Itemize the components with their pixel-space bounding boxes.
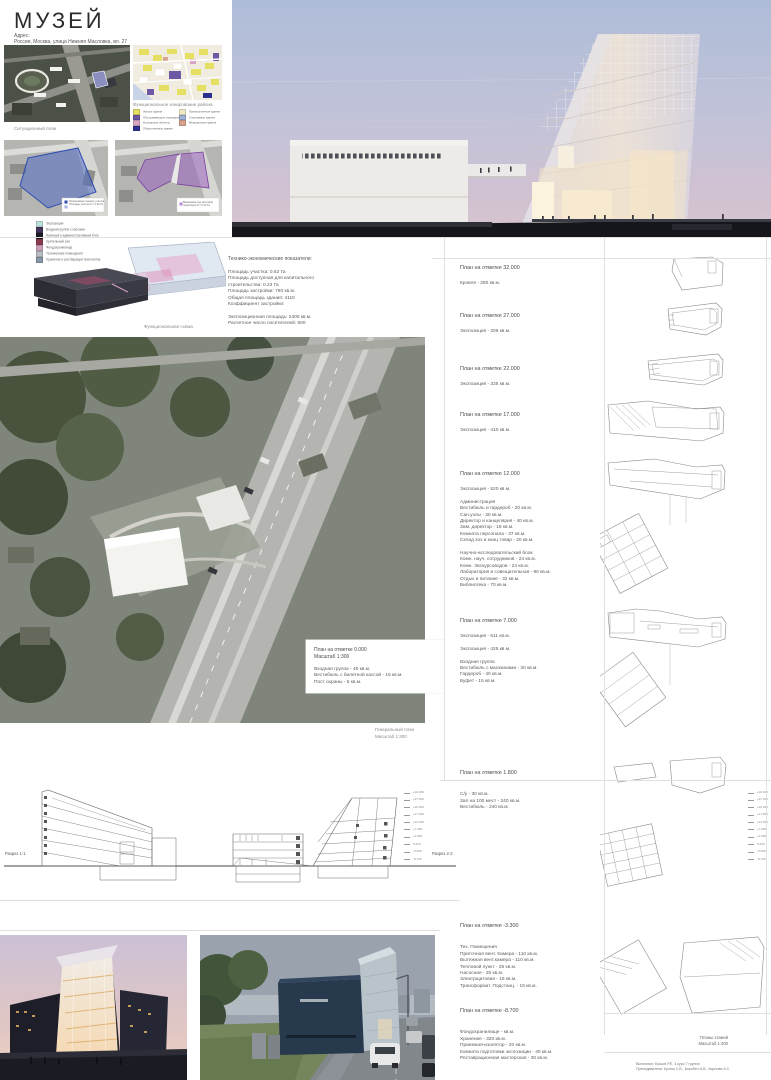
plan-block-line: Реставрационная мастерская - 30 кв.м. [460, 1056, 632, 1062]
floor-plan-drawings [600, 237, 771, 1035]
divider [432, 258, 771, 259]
elevation-mark: +1.800 [748, 834, 768, 841]
elevation-mark: -8.700 [404, 857, 424, 864]
functional-scheme-image [28, 242, 226, 327]
functional-scheme-caption: Функциональная схема [144, 324, 193, 329]
elevation-mark: +17.000 [748, 812, 768, 819]
legend-swatch [36, 227, 43, 233]
divider [604, 237, 605, 1035]
masterplan-caption-1: Генеральный план [375, 727, 414, 732]
elevation-mark: +27.000 [748, 797, 768, 804]
page-title: МУЗЕЙ [14, 8, 105, 34]
indicators-lines: Площадь участка: 0.62 ГаПлощадь доступна… [228, 270, 368, 328]
presentation-board: МУЗЕЙ Адрес: Россия, Москва, улица Нижня… [0, 0, 771, 1080]
plan-0-note-lines: Входная группа - 46 кв.м.Вестибюль с бил… [314, 667, 436, 686]
elevation-mark: -3.300 [748, 849, 768, 856]
elevation-mark: +12.000 [748, 820, 768, 827]
zoning-map-image [133, 45, 222, 105]
zoning-legend-item: Общественные здания [133, 126, 179, 132]
night-render-svg [0, 935, 187, 1080]
sections-drawing [0, 778, 460, 909]
site-map-a-image [4, 140, 108, 221]
plan-0-note: План на отметке 0.000 Масштаб 1:300 Вход… [306, 640, 444, 693]
elevation-mark: +17.000 [404, 812, 424, 819]
plans-caption: Планы этажей Масштаб 1:400 [652, 1035, 728, 1047]
situation-caption: Ситуационный план [14, 126, 56, 131]
zoning-legend-item: Медицинские здания [179, 120, 225, 126]
zoning-caption: Функциональное зонирование района [133, 102, 213, 107]
elevation-mark: +7.000 [748, 827, 768, 834]
site-map-a-legend: Нормативная граница участкаПлощадь участ… [69, 200, 105, 207]
elevation-mark: +12.000 [404, 820, 424, 827]
divider [604, 1013, 771, 1014]
section-2-label: Разрез 2-2 [432, 851, 453, 856]
elevation-mark: -3.300 [404, 849, 424, 856]
elevation-mark: 0.000 [748, 842, 768, 849]
street-photo-image [200, 935, 435, 1080]
elevation-mark: +32.000 [404, 790, 424, 797]
divider [440, 780, 771, 781]
indicators-title: Технико-экономические показатели: [228, 256, 368, 262]
elevation-mark: +22.000 [404, 805, 424, 812]
functional-scheme-svg [28, 242, 226, 322]
divider [0, 237, 771, 238]
divider [604, 1052, 771, 1053]
divider [766, 237, 767, 1035]
situation-map-svg [4, 45, 130, 122]
hero-render-image [232, 0, 771, 242]
elevation-mark: 0.000 [404, 842, 424, 849]
sections-svg [0, 778, 460, 904]
plan-0-note-scale: Масштаб 1:300 [314, 654, 436, 661]
legend-swatch [36, 221, 43, 227]
indicator-line: Расчетное число посетителей: 500 [228, 321, 368, 327]
plans-caption-line2: Масштаб 1:400 [652, 1041, 728, 1047]
elevation-mark: +7.000 [404, 827, 424, 834]
elevation-mark: +32.000 [748, 790, 768, 797]
elevation-mark: +27.000 [404, 797, 424, 804]
legend-swatch [133, 126, 140, 132]
zoning-legend: Жилые зданияПромышленные зданияОбслужива… [133, 109, 227, 131]
elevation-mark: +22.000 [748, 805, 768, 812]
divider [0, 900, 460, 901]
section-1-label: Разрез 1-1 [5, 851, 26, 856]
indicators-block: Технико-экономические показатели: Площад… [228, 256, 368, 328]
divider [444, 237, 445, 780]
site-map-b-image [115, 140, 222, 221]
hero-render-svg [232, 0, 771, 237]
night-render-image [0, 935, 187, 1080]
elevation-mark: -8.700 [748, 857, 768, 864]
elevation-ruler-1: +32.000+27.000+22.000+17.000+12.000+7.00… [404, 790, 424, 864]
site-map-b-legend: Возможная под застройкутерритория S = 0.… [183, 201, 221, 208]
credits: Выполнил: Ершов Р.Е. 4 курс 7 группа Пре… [636, 1062, 766, 1073]
credit-line2: Преподаватели: Кулиш С.В., Бокобен А.В.,… [636, 1067, 766, 1072]
plan-0-note-line: Пост охраны - 5 кв.м. [314, 680, 436, 686]
street-photo-svg [200, 935, 435, 1080]
zoning-map-svg [133, 45, 222, 100]
elevation-ruler-2: +32.000+27.000+22.000+17.000+12.000+7.00… [748, 790, 768, 864]
legend-swatch [179, 120, 186, 126]
divider [0, 930, 440, 931]
plan-0-note-title: План на отметке 0.000 [314, 647, 436, 654]
masterplan-caption-2: Масштаб 1:300 [375, 734, 407, 739]
site-map-a-legend-line: Площадь участка S = 0.62 Га [69, 203, 105, 206]
situation-map-image [4, 45, 130, 127]
elevation-mark: +1.800 [404, 834, 424, 841]
floor-plan-drawings-svg [600, 237, 771, 1030]
site-map-b-legend-line: территория S = 0.23 Га [183, 204, 221, 207]
